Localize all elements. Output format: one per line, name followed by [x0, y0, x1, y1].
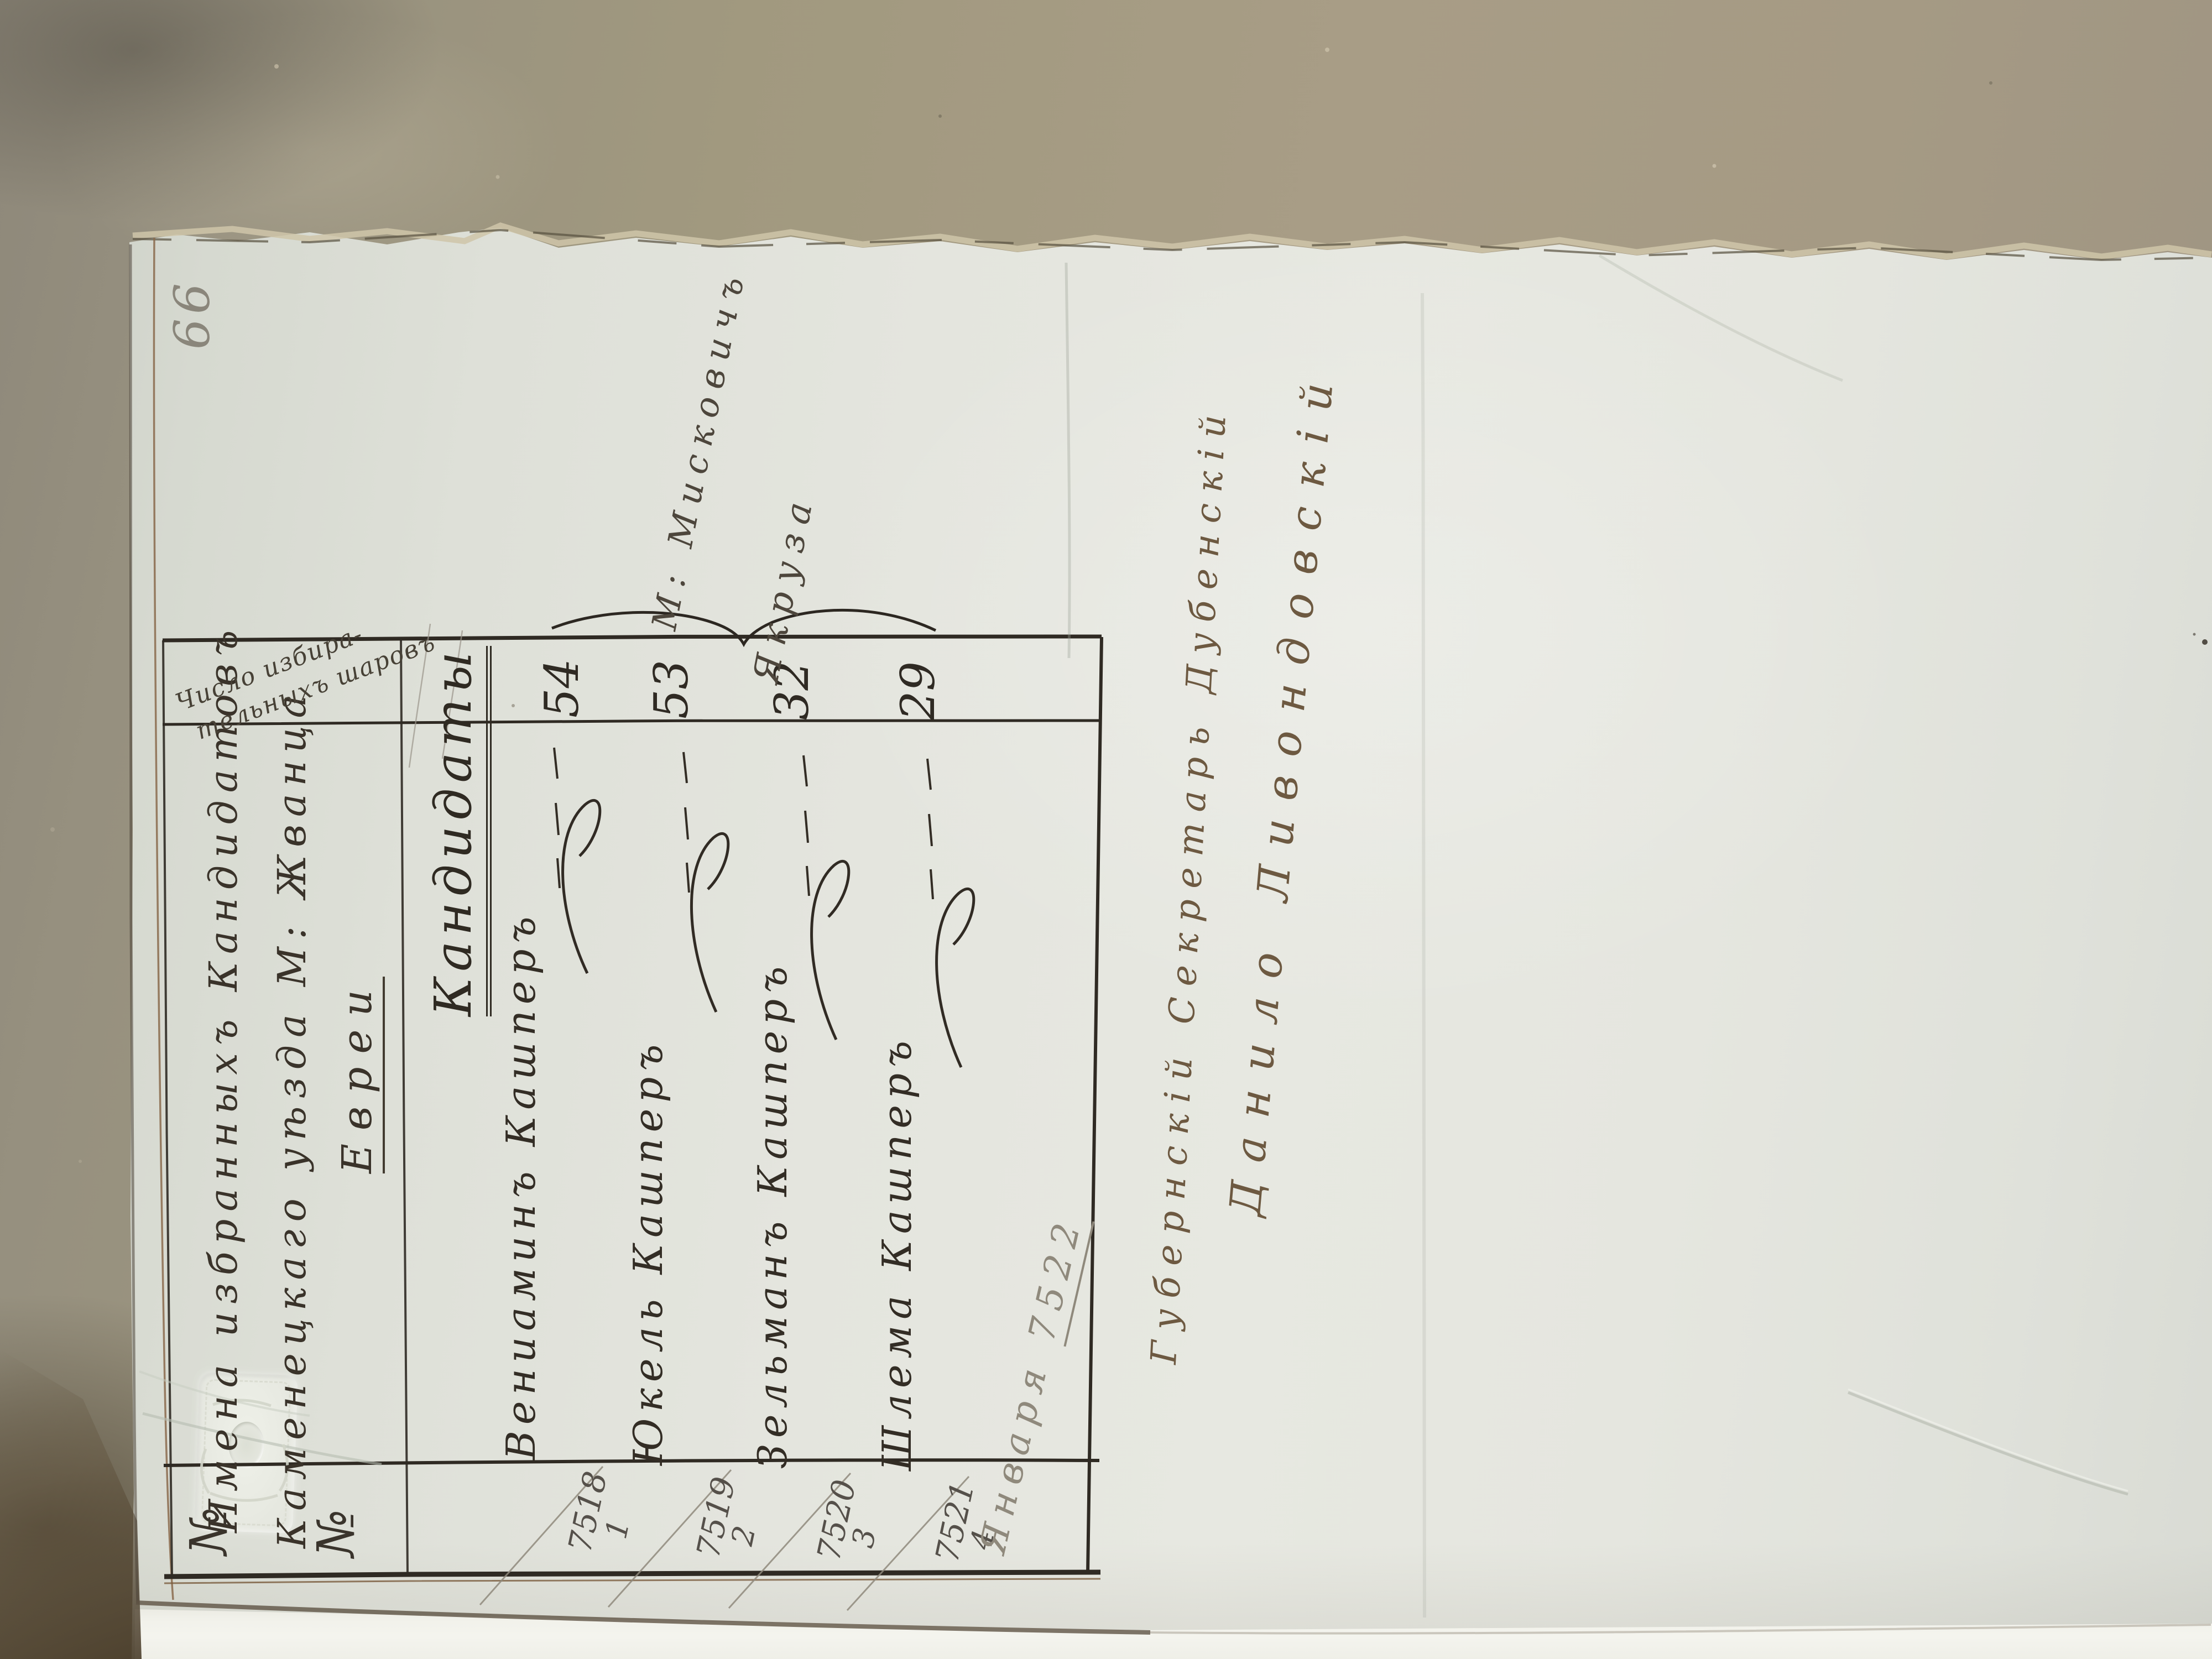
torn-edge-fibers: [133, 226, 2211, 257]
ink-ruling-and-marks: [0, 0, 2212, 1659]
fold-shadow-line: [136, 1603, 1150, 1632]
candidate-name: Юкель Кашперъ: [628, 1039, 670, 1465]
candidate-name: Зельманъ Кашперъ: [752, 961, 794, 1469]
table-title: Кандидаты: [427, 646, 492, 1016]
ink-speck: [2202, 639, 2208, 645]
candidate-name: Шлема Кашперъ: [877, 1035, 919, 1471]
fold-shadow-line-right: [1150, 1625, 2211, 1634]
vote-count: 53: [647, 660, 696, 719]
number-column-header-second: №: [310, 1509, 363, 1557]
ink-speck-small: [2193, 633, 2196, 636]
page-number: 66: [167, 279, 218, 349]
vote-count: 54: [538, 659, 586, 718]
photo-of-document-on-cardboard: 66 Имена избранныхъ Кандидатовъ Каменецк…: [0, 0, 2212, 1659]
table-row-header-line3: Евреи: [336, 977, 385, 1173]
dash-fillers: [554, 748, 933, 899]
table-row-header-line2: Каменецкаго уѣзда М: Жванца: [272, 687, 313, 1548]
candidate-name: Вениаминъ Кашперъ: [500, 910, 542, 1460]
vote-count: 29: [894, 661, 942, 721]
page-left-edge: [130, 244, 138, 1604]
table-row-header-line1: Имена избранныхъ Кандидатовъ: [204, 623, 244, 1533]
number-column-header-first: №: [182, 1507, 236, 1555]
